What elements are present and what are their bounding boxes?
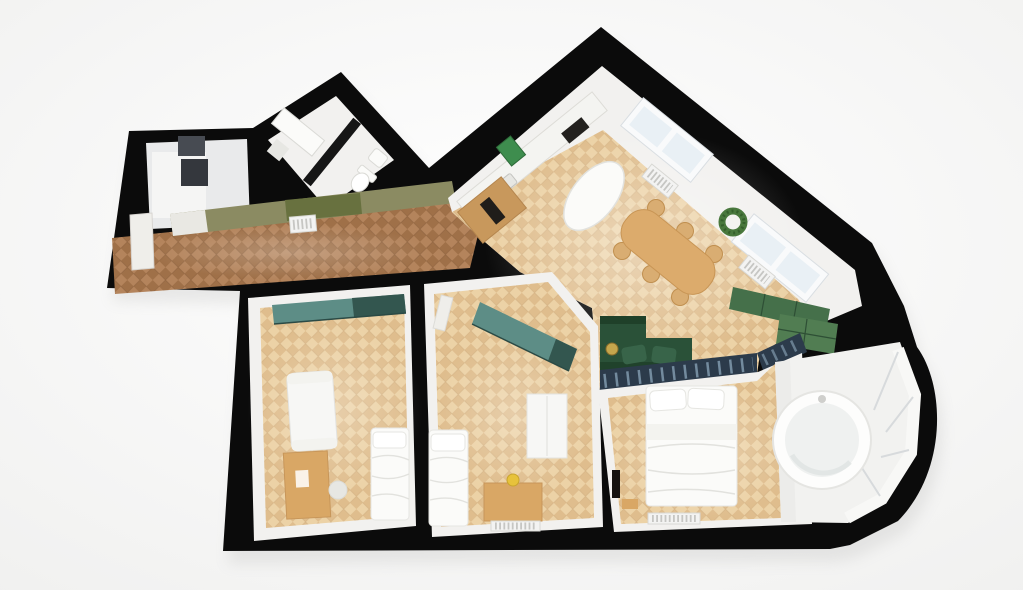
hallway-cabinet-white-end xyxy=(170,210,208,236)
bed-pillow xyxy=(649,389,686,411)
bed-blanket-strip xyxy=(646,424,737,440)
desk-lamp xyxy=(507,474,519,486)
bed-master xyxy=(646,386,737,506)
radiator-body xyxy=(491,521,540,531)
media-shelf xyxy=(622,499,638,509)
tub-faucet xyxy=(818,395,826,403)
floor-plan-stage xyxy=(0,0,1023,590)
cabinet-middle xyxy=(527,394,567,458)
hallway-door xyxy=(130,213,154,270)
round-bathtub xyxy=(773,391,871,489)
bedroom-left xyxy=(247,285,423,541)
bedroom-middle xyxy=(424,272,603,537)
desk-left xyxy=(283,451,330,519)
desk-top xyxy=(484,483,542,521)
closet-dark-panel-2 xyxy=(181,159,208,186)
bed-left xyxy=(371,428,409,520)
bed-middle xyxy=(429,430,468,526)
daybed-sofa xyxy=(286,370,337,451)
desk-middle xyxy=(484,474,542,531)
bed-pillow xyxy=(431,434,465,451)
tv-screen xyxy=(612,470,620,498)
bed-pillow xyxy=(688,388,725,410)
closet-dark-panel xyxy=(178,136,205,156)
floor-plan-canvas xyxy=(0,0,1023,590)
radiator-master xyxy=(648,513,700,524)
hallway-radiator xyxy=(289,215,316,233)
bed-pillow xyxy=(373,432,406,448)
sofa-back-cushion xyxy=(600,316,646,324)
desk-chair xyxy=(329,481,347,499)
desk-paper xyxy=(295,470,309,488)
sofa-tray xyxy=(606,343,618,355)
